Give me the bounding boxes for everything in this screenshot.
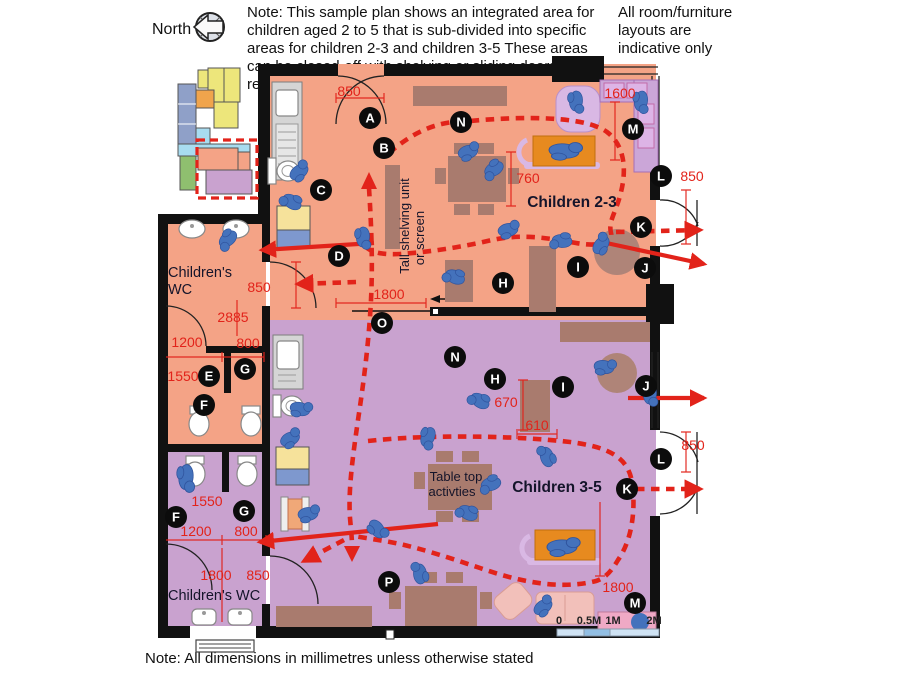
marker-g-lower: G xyxy=(233,500,255,522)
svg-text:B: B xyxy=(379,141,388,156)
svg-text:I: I xyxy=(576,260,580,275)
marker-k-upper: K xyxy=(630,216,652,238)
svg-text:F: F xyxy=(172,510,180,525)
svg-text:D: D xyxy=(334,249,343,264)
dim-wc-lower-w1: 1200 xyxy=(180,523,211,539)
svg-text:M: M xyxy=(630,596,641,611)
dim-top-door: 850 xyxy=(337,83,361,99)
dim-wc-lower-depth: 1800 xyxy=(200,567,231,583)
dim-table23: 760 xyxy=(516,170,540,186)
dim-wc-upper-len: 1550 xyxy=(167,368,198,384)
svg-text:L: L xyxy=(657,169,665,184)
floor-plan-page: North Note: This sample plan shows an in… xyxy=(0,0,900,675)
svg-text:P: P xyxy=(385,575,394,590)
dim-wc-upper-w1: 1200 xyxy=(171,334,202,350)
changing-unit-upper xyxy=(277,206,310,248)
svg-text:M: M xyxy=(628,122,639,137)
marker-m-upper: M xyxy=(622,118,644,140)
marker-c: C xyxy=(310,179,332,201)
tabletop-label-2: activties xyxy=(429,484,476,499)
svg-text:I: I xyxy=(561,380,565,395)
dim-wc-upper-w2: 800 xyxy=(236,335,260,351)
dim-right-door-lower: 850 xyxy=(681,437,705,453)
svg-text:J: J xyxy=(641,261,648,276)
marker-e: E xyxy=(198,365,220,387)
wc-upper-label-1: Children's xyxy=(168,265,232,281)
scale-1m: 1M xyxy=(605,615,620,627)
marker-a: A xyxy=(359,107,381,129)
dim-wc-lower-w2: 800 xyxy=(234,523,258,539)
svg-text:A: A xyxy=(365,111,375,126)
scale-2m: 2M xyxy=(646,615,661,627)
svg-text:N: N xyxy=(450,350,459,365)
children35-label: Children 3-5 xyxy=(512,479,602,496)
marker-m-lower: M xyxy=(624,592,646,614)
svg-text:O: O xyxy=(377,316,387,331)
marker-j-lower: J xyxy=(635,375,657,397)
shelf-top-wall xyxy=(413,86,507,106)
scale-0: 0 xyxy=(556,615,562,627)
dim-window-seat: 1600 xyxy=(604,85,635,101)
entrance-threshold-door xyxy=(196,640,254,652)
marker-b: B xyxy=(373,137,395,159)
svg-text:H: H xyxy=(490,372,499,387)
marker-g-upper: G xyxy=(234,358,256,380)
marker-d: D xyxy=(328,245,350,267)
dim-670: 670 xyxy=(494,394,518,410)
svg-text:K: K xyxy=(636,220,646,235)
marker-n-lower: N xyxy=(444,346,466,368)
marker-i-upper: I xyxy=(567,256,589,278)
svg-text:F: F xyxy=(200,398,208,413)
marker-h-lower: H xyxy=(484,368,506,390)
svg-text:E: E xyxy=(205,369,214,384)
svg-text:G: G xyxy=(240,362,250,377)
wc-upper-label-2: WC xyxy=(168,282,192,298)
svg-text:C: C xyxy=(316,183,326,198)
svg-text:H: H xyxy=(498,276,507,291)
shelf-divider-lower xyxy=(560,322,650,342)
shelving-label-1: Tall shelving unit xyxy=(397,178,412,274)
marker-k-lower: K xyxy=(616,478,638,500)
kitchen-unit-lower xyxy=(273,335,303,389)
dim-wc-lower-door: 850 xyxy=(246,567,270,583)
floor-plan-svg: Children 2-3 Children 3-5 Children's WC … xyxy=(0,0,900,675)
marker-l-upper: L xyxy=(650,165,672,187)
svg-text:N: N xyxy=(456,115,465,130)
dim-wc-lower-len: 1550 xyxy=(191,493,222,509)
dim-wc-upper-door: 850 xyxy=(247,279,271,295)
marker-o: O xyxy=(371,312,393,334)
changing-unit-lower xyxy=(276,447,309,485)
dim-610: 610 xyxy=(525,417,549,433)
dim-right-door-upper: 850 xyxy=(680,168,704,184)
storage-bench-b xyxy=(529,246,556,312)
dim-divider-opening: 1800 xyxy=(373,286,404,302)
marker-i-lower: I xyxy=(552,376,574,398)
svg-text:J: J xyxy=(642,379,649,394)
shelving-label-2: or screen xyxy=(412,211,427,265)
svg-text:K: K xyxy=(622,482,632,497)
bench-bottom-wall xyxy=(276,606,372,627)
marker-f-lower: F xyxy=(165,506,187,528)
marker-l-lower: L xyxy=(650,448,672,470)
scale-05m: 0.5M xyxy=(577,615,601,627)
svg-text:G: G xyxy=(239,504,249,519)
overview-map xyxy=(178,68,257,198)
children23-label: Children 2-3 xyxy=(527,194,617,211)
dim-room35-wall: 1800 xyxy=(602,579,633,595)
svg-text:L: L xyxy=(657,452,665,467)
marker-p: P xyxy=(378,571,400,593)
marker-h-upper: H xyxy=(492,272,514,294)
wc-lower-label: Children's WC xyxy=(168,588,260,604)
marker-f-upper: F xyxy=(193,394,215,416)
north-compass-icon xyxy=(194,13,224,41)
marker-n-upper: N xyxy=(450,111,472,133)
marker-j-upper: J xyxy=(634,257,656,279)
tabletop-label-1: Table top xyxy=(430,469,483,484)
dim-wc-upper-depth: 2885 xyxy=(217,309,248,325)
